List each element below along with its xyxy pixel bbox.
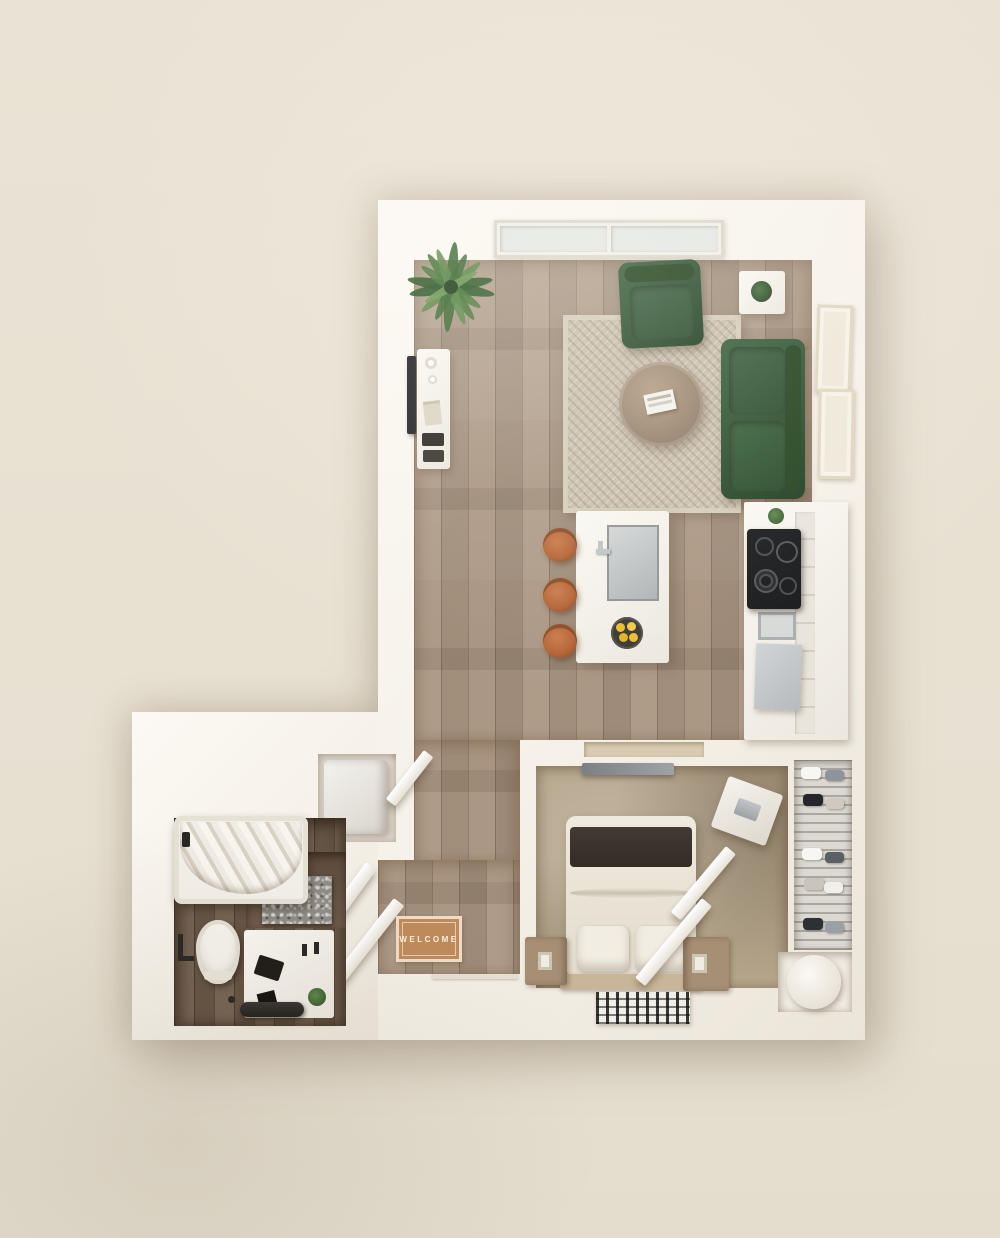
magazine bbox=[643, 389, 677, 415]
window-pane bbox=[611, 226, 718, 252]
burner-2 bbox=[776, 541, 798, 563]
bar-stool-3 bbox=[543, 624, 577, 658]
shoe bbox=[803, 918, 823, 930]
green-armchair bbox=[618, 259, 704, 349]
wall-hook bbox=[228, 996, 235, 1003]
decor-box bbox=[423, 450, 444, 462]
shoe bbox=[824, 882, 843, 893]
shoe bbox=[825, 922, 844, 933]
shoe bbox=[804, 878, 824, 890]
shower-curtain bbox=[180, 822, 302, 894]
window-pane bbox=[500, 226, 607, 252]
shoe bbox=[826, 798, 844, 809]
laptop bbox=[733, 797, 761, 821]
sofa-back bbox=[785, 345, 801, 493]
duvet-fold bbox=[570, 888, 692, 898]
sofa-cushion bbox=[729, 347, 785, 415]
lamp bbox=[538, 952, 552, 970]
built-in-appliance bbox=[758, 612, 796, 640]
decor-box bbox=[422, 433, 444, 446]
lemon bbox=[629, 633, 638, 642]
lemon bbox=[627, 622, 636, 631]
faucet-arm bbox=[598, 541, 603, 555]
bathtub-shower bbox=[174, 816, 308, 904]
picture-frame-1 bbox=[814, 304, 853, 393]
corner-nook bbox=[778, 952, 852, 1012]
double-bed bbox=[566, 816, 696, 978]
decor-vase bbox=[425, 357, 437, 369]
wall-tv bbox=[407, 356, 416, 434]
shoe bbox=[801, 767, 821, 779]
armchair-cushion bbox=[629, 283, 694, 340]
armchair-back bbox=[624, 263, 695, 283]
magazine-line bbox=[648, 400, 672, 408]
tv-console bbox=[417, 349, 450, 469]
nightstand-right bbox=[683, 937, 729, 991]
counter-plant bbox=[768, 508, 784, 524]
green-sofa bbox=[721, 339, 805, 499]
vanity-tray bbox=[254, 954, 285, 981]
headboard bbox=[560, 974, 702, 990]
burner-4 bbox=[779, 577, 797, 595]
kitchen-island bbox=[576, 511, 669, 663]
accent-rug bbox=[596, 992, 690, 1024]
burner-3 bbox=[754, 569, 778, 593]
window bbox=[494, 220, 724, 258]
towel-bar bbox=[240, 1002, 304, 1017]
potted-plant bbox=[751, 281, 772, 302]
wall-inset-vent bbox=[584, 742, 704, 757]
vanity-plant bbox=[308, 988, 326, 1006]
welcome-mat: WELCOME bbox=[396, 916, 462, 962]
decor-book bbox=[423, 400, 442, 426]
round-coffee-table bbox=[619, 362, 703, 446]
lemon-bowl bbox=[611, 617, 643, 649]
island-sink bbox=[607, 525, 659, 601]
refrigerator bbox=[754, 643, 802, 711]
palm-plant bbox=[390, 226, 512, 348]
shoe bbox=[825, 852, 844, 863]
bedroom-wall-tv bbox=[582, 763, 674, 775]
sofa-cushion bbox=[729, 421, 785, 491]
bar-stool-2 bbox=[543, 578, 577, 612]
door-threshold bbox=[432, 974, 518, 979]
cooktop bbox=[747, 529, 801, 609]
toilet-paper-holder-arm bbox=[178, 956, 194, 961]
lamp bbox=[692, 954, 707, 973]
shoe-closet bbox=[794, 760, 852, 950]
shoe bbox=[802, 848, 822, 860]
burner-1 bbox=[755, 537, 774, 556]
shoe bbox=[803, 794, 823, 806]
nightstand-left bbox=[525, 937, 567, 985]
side-table bbox=[739, 271, 785, 314]
dark-throw bbox=[570, 827, 692, 867]
vanity-faucet bbox=[314, 942, 319, 954]
lemon bbox=[616, 623, 625, 632]
shower-valve bbox=[182, 832, 190, 847]
decor-vase bbox=[428, 375, 437, 384]
round-side-chair bbox=[787, 955, 841, 1009]
apartment-floor-plan: WELCOME bbox=[0, 0, 1000, 1238]
pillow-left bbox=[577, 926, 629, 972]
welcome-mat-text: WELCOME bbox=[396, 916, 462, 962]
shoe bbox=[825, 770, 844, 781]
toilet bbox=[196, 920, 240, 984]
picture-frame-2 bbox=[817, 389, 855, 480]
toilet-lid-hinge bbox=[204, 971, 232, 980]
bar-stool-1 bbox=[543, 528, 577, 562]
lemon bbox=[619, 633, 628, 642]
vanity-faucet bbox=[302, 944, 307, 956]
